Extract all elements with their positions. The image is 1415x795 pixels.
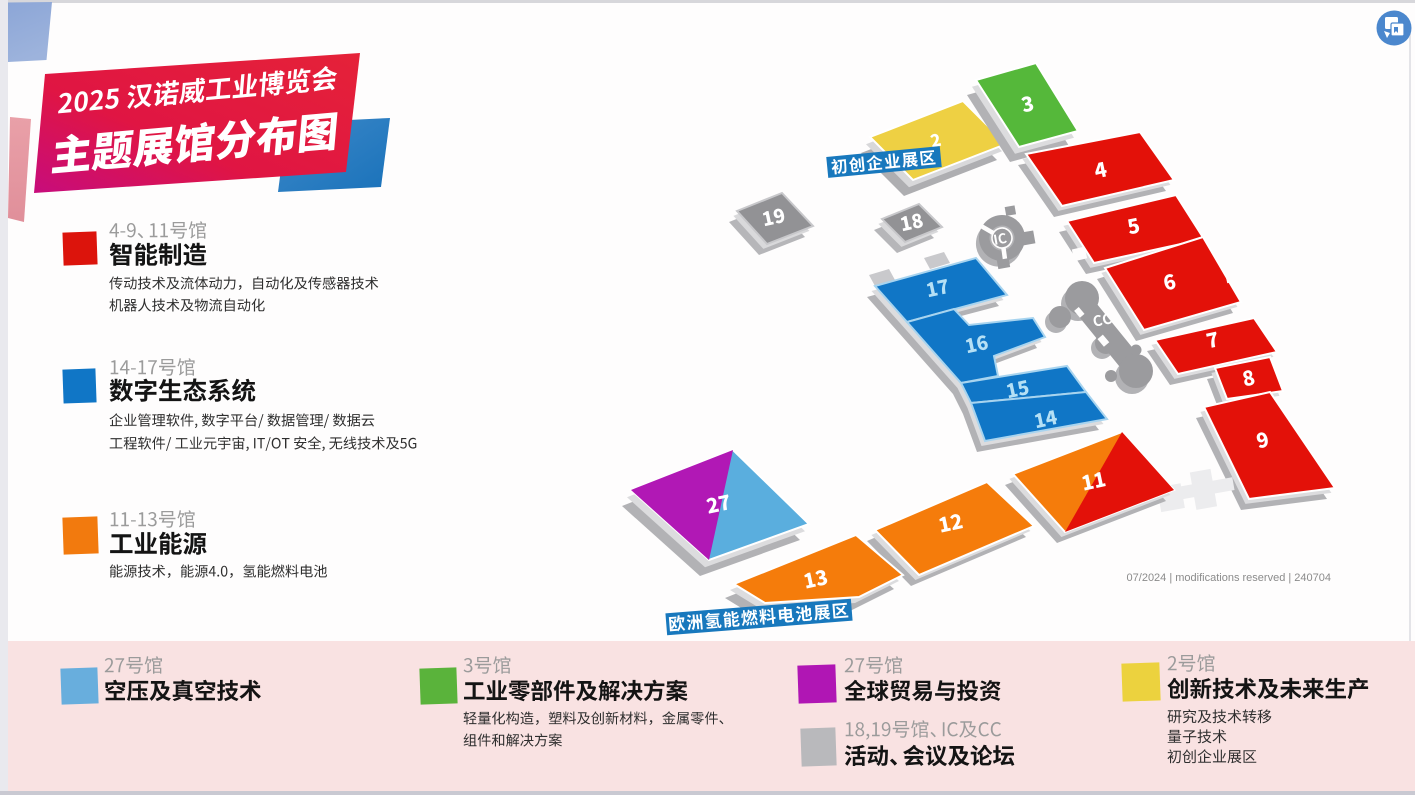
svg-text:07/2024 | modifications reserv: 07/2024 | modifications reserved | 24070… xyxy=(1127,572,1331,584)
